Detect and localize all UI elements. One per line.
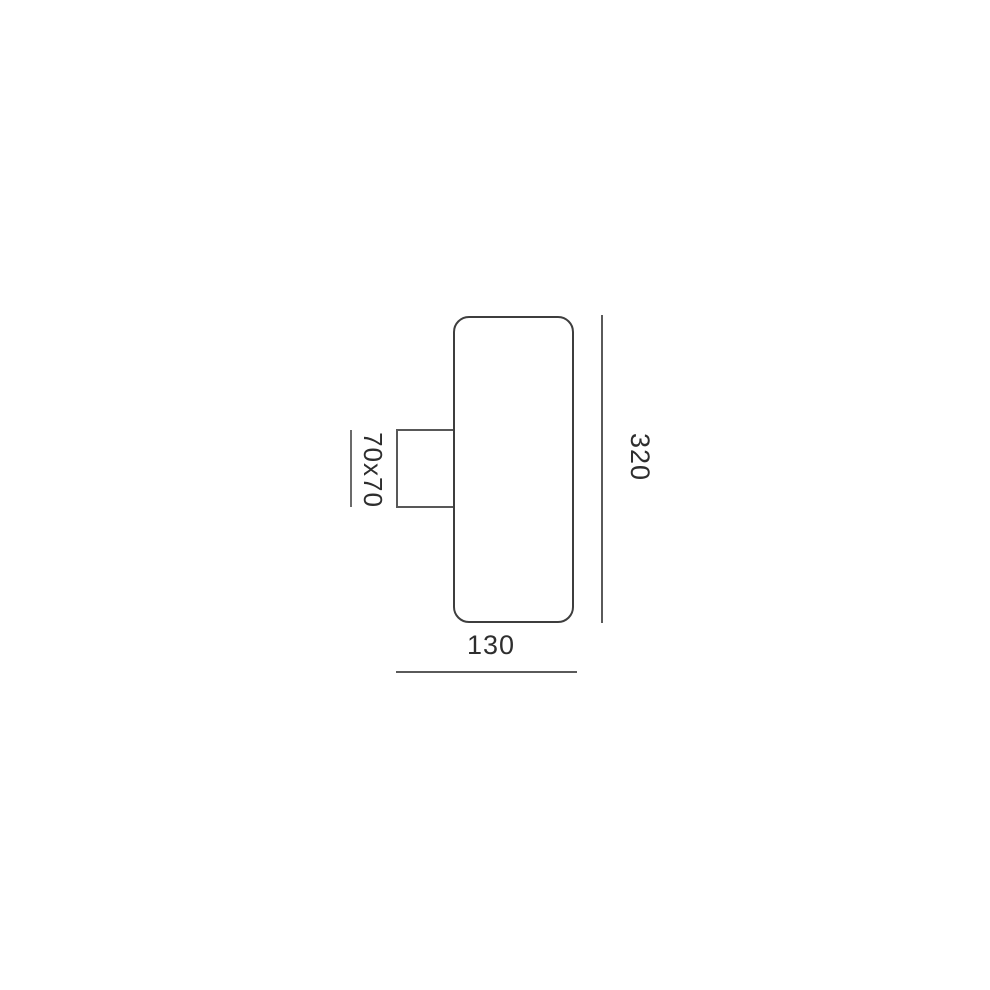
width-dimension-line xyxy=(396,671,577,673)
bracket-dimension-label: 70x70 xyxy=(359,400,387,540)
dimension-drawing: 320 70x70 130 xyxy=(0,0,990,990)
height-dimension-label: 320 xyxy=(626,387,654,527)
mount-bracket-outline xyxy=(396,429,456,508)
height-dimension-line xyxy=(601,315,603,623)
fixture-body-outline xyxy=(453,316,574,623)
width-dimension-label: 130 xyxy=(421,631,561,661)
bracket-dimension-line xyxy=(350,430,352,507)
